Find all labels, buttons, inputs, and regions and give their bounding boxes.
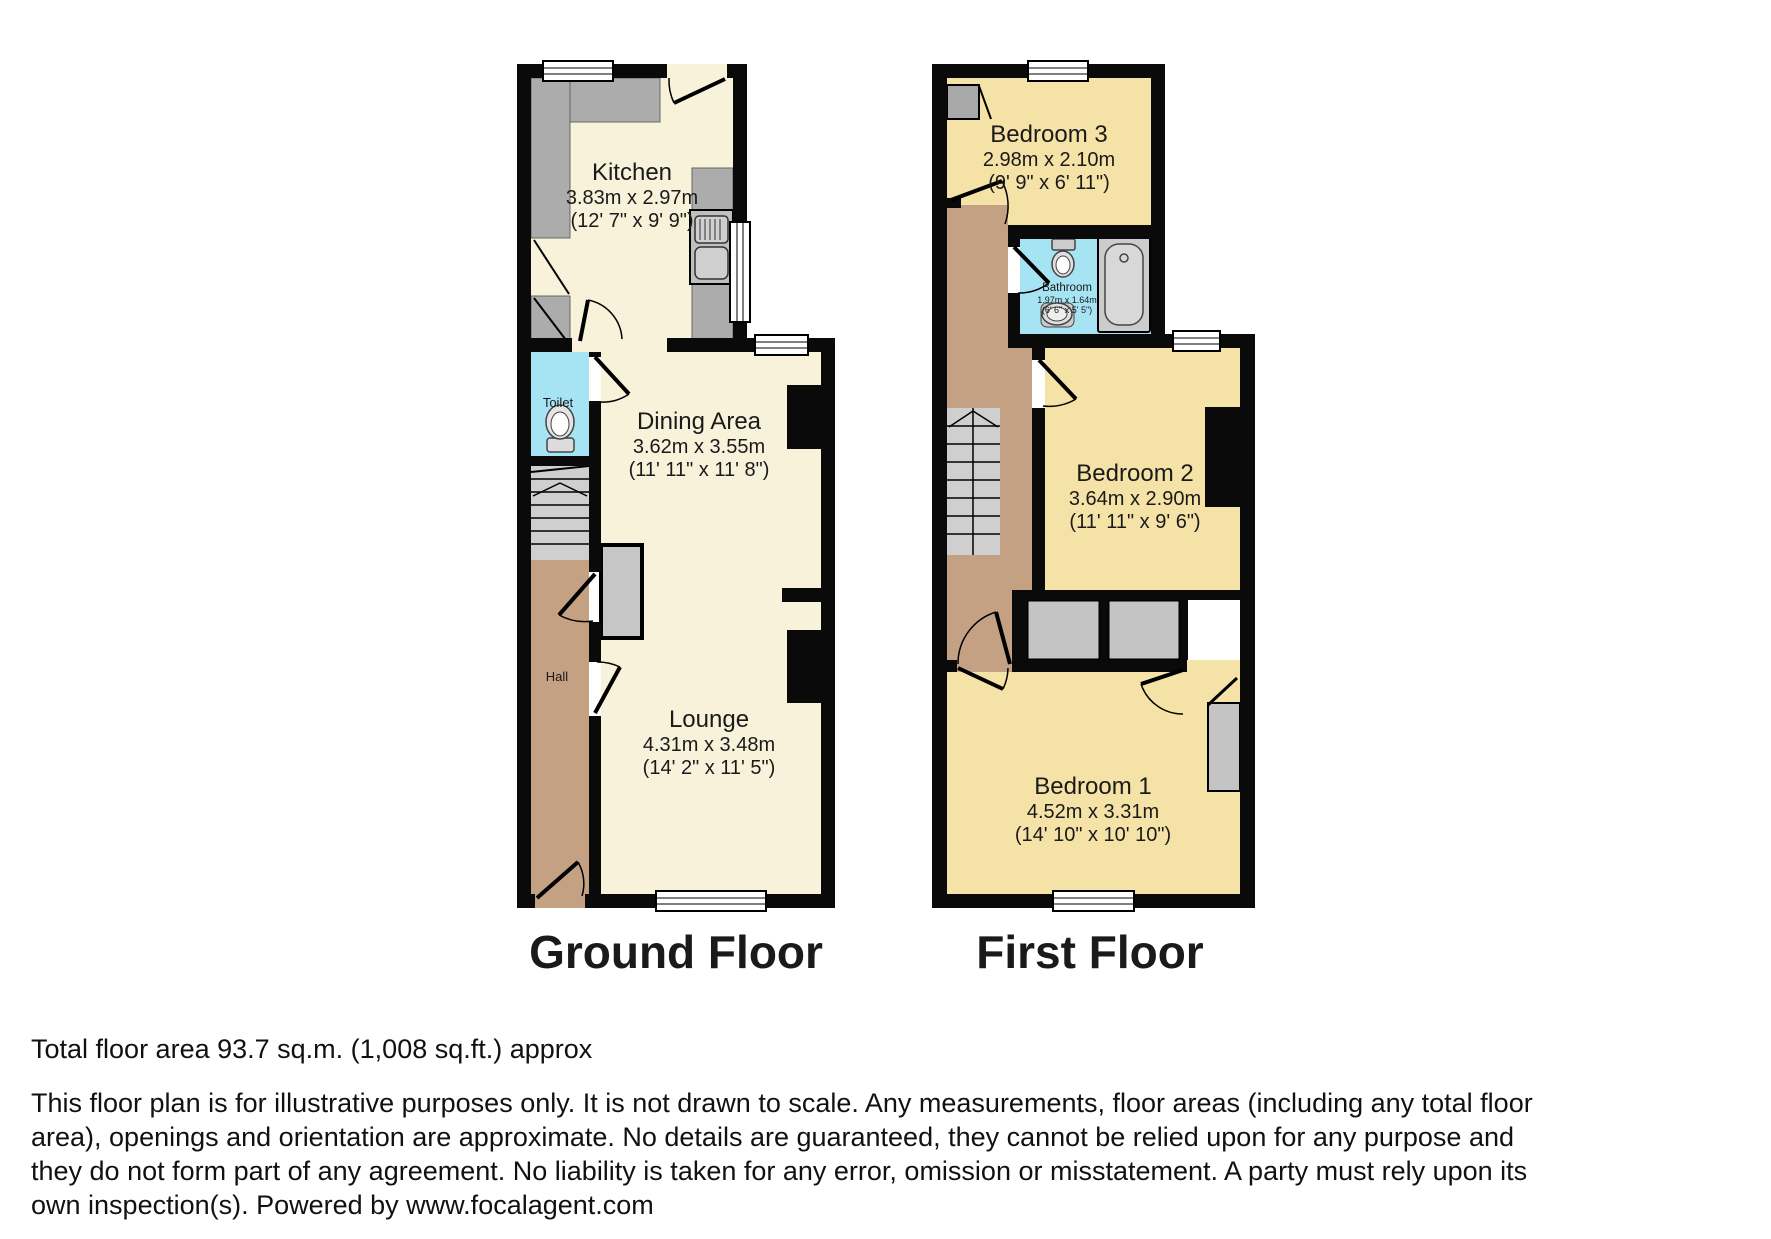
bedroom1-label: Bedroom 1 xyxy=(1034,773,1151,800)
closet xyxy=(1108,600,1180,660)
dining-label: Dining Area xyxy=(637,408,762,435)
bedroom1-imperial: (14' 10" x 10' 10") xyxy=(1015,824,1171,846)
closet xyxy=(1027,600,1100,660)
bedroom2-imperial: (11' 11" x 9' 6") xyxy=(1069,511,1200,533)
first-floor-plan: Bedroom 3 2.98m x 2.10m (9' 9" x 6' 11")… xyxy=(932,61,1255,978)
hall-label: Hall xyxy=(546,669,569,684)
hall-room xyxy=(531,560,589,894)
lounge-label: Lounge xyxy=(669,706,749,733)
landing xyxy=(947,205,1008,348)
bathroom-imperial: (6' 6" x 5' 5") xyxy=(1042,305,1092,315)
bedroom3-label: Bedroom 3 xyxy=(990,121,1107,148)
sink-unit-icon xyxy=(690,210,733,284)
kitchen-imperial: (12' 7" x 9' 9") xyxy=(571,210,694,232)
lounge-metric: 4.31m x 3.48m xyxy=(643,734,775,756)
stairs-area xyxy=(531,466,589,560)
bathroom-label: Bathroom xyxy=(1042,282,1092,294)
ground-floor-plan: Kitchen 3.83m x 2.97m (12' 7" x 9' 9") D… xyxy=(517,61,835,978)
bedroom1-metric: 4.52m x 3.31m xyxy=(1027,801,1159,823)
toilet-label: Toilet xyxy=(543,395,574,410)
disclaimer-text: This floor plan is for illustrative purp… xyxy=(31,1086,1566,1222)
total-floor-area: Total floor area 93.7 sq.m. (1,008 sq.ft… xyxy=(31,1034,592,1065)
lounge-imperial: (14' 2" x 11' 5") xyxy=(643,757,776,779)
bedroom3-metric: 2.98m x 2.10m xyxy=(983,149,1115,171)
kitchen-label: Kitchen xyxy=(592,159,672,186)
bathroom-metric: 1.97m x 1.64m xyxy=(1037,295,1097,305)
kitchen-metric: 3.83m x 2.97m xyxy=(566,187,698,209)
bathtub-icon xyxy=(1098,237,1150,332)
bedroom2-metric: 3.64m x 2.90m xyxy=(1069,488,1201,510)
cupboard xyxy=(601,545,642,638)
bedroom2-label: Bedroom 2 xyxy=(1076,460,1193,487)
toilet-icon xyxy=(1052,239,1075,277)
dining-metric: 3.62m x 3.55m xyxy=(633,436,765,458)
dining-imperial: (11' 11" x 11' 8") xyxy=(629,459,770,481)
toilet-icon xyxy=(546,405,574,452)
first-floor-title: First Floor xyxy=(976,926,1204,978)
bedroom3-imperial: (9' 9" x 6' 11") xyxy=(988,172,1110,194)
ground-floor-title: Ground Floor xyxy=(529,926,823,978)
